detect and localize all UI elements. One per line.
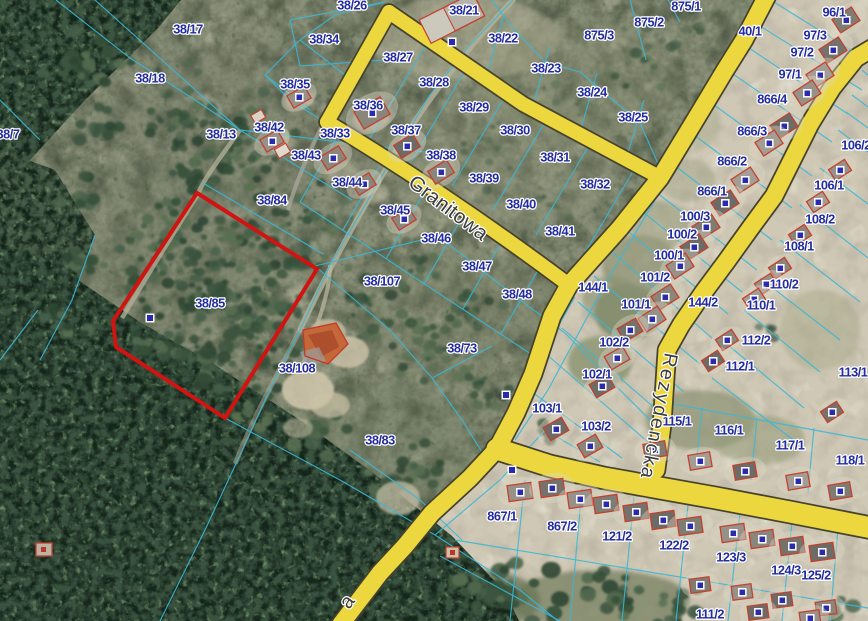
svg-text:38/83: 38/83: [365, 433, 395, 448]
svg-text:38/25: 38/25: [618, 110, 648, 125]
svg-text:38/32: 38/32: [580, 177, 610, 192]
svg-text:123/3: 123/3: [716, 550, 746, 565]
svg-text:38/85: 38/85: [195, 296, 225, 311]
svg-text:40/1: 40/1: [739, 24, 762, 39]
svg-text:113/1: 113/1: [839, 365, 868, 380]
svg-text:106/2: 106/2: [841, 138, 868, 153]
svg-text:97/2: 97/2: [791, 45, 814, 60]
svg-text:108/1: 108/1: [784, 239, 814, 254]
svg-text:108/2: 108/2: [805, 212, 835, 227]
svg-text:38/17: 38/17: [173, 22, 203, 37]
svg-text:38/24: 38/24: [577, 85, 608, 100]
svg-text:102/1: 102/1: [582, 367, 612, 382]
svg-text:38/27: 38/27: [383, 50, 413, 65]
svg-text:122/2: 122/2: [659, 538, 689, 553]
svg-text:100/2: 100/2: [667, 227, 697, 242]
svg-text:38/40: 38/40: [506, 197, 536, 212]
svg-text:38/42: 38/42: [254, 120, 284, 135]
svg-text:97/3: 97/3: [804, 28, 827, 43]
svg-text:38/29: 38/29: [459, 100, 489, 115]
svg-text:38/23: 38/23: [531, 61, 561, 76]
svg-text:38/41: 38/41: [545, 224, 575, 239]
svg-text:103/1: 103/1: [532, 401, 562, 416]
svg-text:38/30: 38/30: [500, 123, 530, 138]
svg-text:38/21: 38/21: [449, 3, 479, 18]
svg-text:38/22: 38/22: [488, 31, 518, 46]
svg-text:121/2: 121/2: [602, 529, 632, 544]
svg-text:38/84: 38/84: [257, 193, 288, 208]
svg-text:101/2: 101/2: [640, 270, 670, 285]
svg-text:38/39: 38/39: [469, 171, 499, 186]
svg-text:38/35: 38/35: [280, 77, 310, 92]
svg-text:875/2: 875/2: [634, 15, 664, 30]
svg-text:144/1: 144/1: [578, 280, 608, 295]
svg-text:101/1: 101/1: [621, 297, 651, 312]
svg-text:100/1: 100/1: [654, 248, 684, 263]
svg-text:100/3: 100/3: [680, 209, 710, 224]
svg-text:110/1: 110/1: [747, 298, 776, 313]
svg-text:103/2: 103/2: [581, 419, 611, 434]
svg-text:866/1: 866/1: [697, 184, 727, 199]
svg-text:866/4: 866/4: [757, 92, 788, 107]
svg-text:38/43: 38/43: [291, 148, 321, 163]
svg-text:38/108: 38/108: [279, 361, 316, 376]
svg-text:97/1: 97/1: [779, 67, 802, 82]
svg-text:102/2: 102/2: [599, 335, 629, 350]
svg-text:867/2: 867/2: [547, 519, 577, 534]
svg-text:38/45: 38/45: [380, 203, 410, 218]
svg-text:38/7: 38/7: [0, 127, 20, 142]
svg-text:38/36: 38/36: [353, 98, 383, 113]
svg-text:38/44: 38/44: [332, 175, 363, 190]
svg-text:38/34: 38/34: [309, 32, 340, 47]
svg-text:875/3: 875/3: [584, 28, 614, 43]
svg-text:38/28: 38/28: [419, 75, 449, 90]
svg-text:144/2: 144/2: [688, 295, 718, 310]
svg-text:38/73: 38/73: [447, 341, 477, 356]
svg-text:38/38: 38/38: [426, 148, 456, 163]
svg-text:866/2: 866/2: [717, 154, 747, 169]
svg-text:875/1: 875/1: [671, 0, 701, 14]
svg-text:38/13: 38/13: [206, 127, 236, 142]
svg-text:112/2: 112/2: [742, 333, 771, 348]
svg-text:96/1: 96/1: [823, 5, 846, 20]
svg-text:38/46: 38/46: [421, 231, 451, 246]
svg-text:38/26: 38/26: [337, 0, 367, 13]
svg-text:38/37: 38/37: [391, 123, 421, 138]
svg-text:112/1: 112/1: [726, 359, 755, 374]
svg-text:110/2: 110/2: [770, 277, 799, 292]
svg-text:38/31: 38/31: [540, 150, 570, 165]
svg-text:124/3: 124/3: [771, 563, 801, 578]
svg-text:38/18: 38/18: [135, 71, 165, 86]
svg-text:111/2: 111/2: [696, 607, 724, 621]
svg-text:38/33: 38/33: [320, 126, 350, 141]
svg-text:116/1: 116/1: [715, 423, 744, 438]
svg-text:866/3: 866/3: [737, 124, 767, 139]
svg-text:117/1: 117/1: [776, 438, 805, 453]
svg-text:38/48: 38/48: [502, 287, 532, 302]
svg-text:38/107: 38/107: [364, 274, 401, 289]
svg-text:125/2: 125/2: [801, 568, 831, 583]
svg-text:867/1: 867/1: [487, 509, 517, 524]
svg-text:118/1: 118/1: [836, 453, 865, 468]
svg-text:38/47: 38/47: [462, 259, 492, 274]
svg-text:106/1: 106/1: [814, 178, 844, 193]
